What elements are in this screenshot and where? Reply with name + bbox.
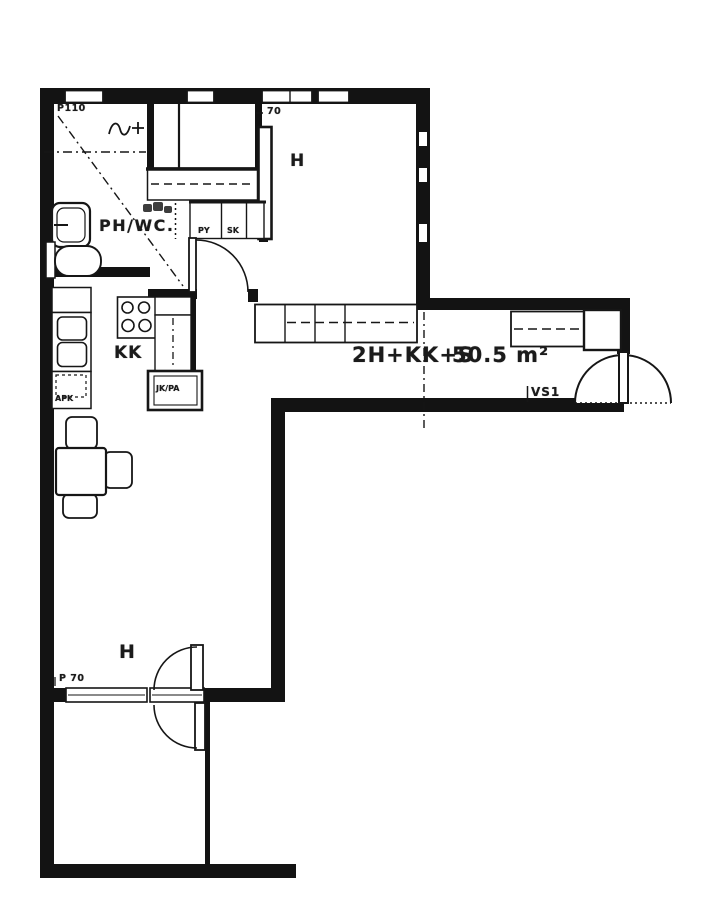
- wall-vent-notch: [419, 168, 427, 182]
- interior-door: [189, 238, 248, 292]
- bathroom-fixtures: [44, 116, 183, 286]
- counter-cabinet: [52, 288, 91, 313]
- floor-plan-linework: [0, 0, 717, 900]
- entrance-door-leaf: [619, 352, 628, 403]
- counter-cabinet: [155, 297, 191, 315]
- door-leaf: [195, 703, 205, 750]
- chair-icon: [104, 452, 132, 488]
- door-leaf: [189, 238, 196, 292]
- wall-sauna-left: [147, 103, 154, 169]
- window: [262, 91, 312, 103]
- floor-plan: P110 70 H PH/WC. PY SK KK JK/PA APK 2H+K…: [0, 0, 717, 900]
- window-dim-top: 70: [267, 106, 281, 117]
- dining-set: [56, 417, 132, 518]
- closet-label-sk: SK: [227, 226, 239, 235]
- dishwasher-label: APK: [55, 394, 73, 403]
- wall-living-bottom-left: [40, 688, 66, 702]
- plus-symbol-icon: [132, 122, 144, 134]
- toilet-icon: [55, 246, 101, 276]
- room-label-top-h: H: [290, 151, 305, 171]
- room-label-bathroom: PH/WC.: [99, 216, 174, 235]
- wall-interior-vertical: [271, 398, 285, 702]
- wall-hall-top: [416, 298, 630, 310]
- wall-vent-notch: [419, 224, 427, 242]
- window: [65, 91, 103, 103]
- door-swing-arc: [196, 240, 248, 292]
- closet-label-py: PY: [198, 226, 210, 235]
- wall-left-exterior: [40, 88, 54, 878]
- wall-kitchen-right: [191, 293, 196, 373]
- wall-hall-lower-right: [248, 289, 258, 302]
- door-leaf: [191, 645, 203, 690]
- apartment-area-label: 50.5 m²: [452, 343, 549, 367]
- dining-table-icon: [56, 448, 106, 495]
- mark-p110: P110: [57, 103, 86, 114]
- room-label-bottom-h: H: [119, 641, 136, 663]
- corner-cabinet: [584, 310, 621, 350]
- wall-living-bottom-right: [204, 688, 285, 702]
- wall-vent-notch: [419, 132, 427, 146]
- window: [187, 91, 214, 103]
- door-swing-arc: [154, 705, 197, 748]
- wall-right-top-room: [416, 88, 430, 310]
- wardrobe-row: [255, 305, 417, 343]
- window: [318, 91, 349, 103]
- chair-icon: [63, 494, 97, 518]
- room-label-kitchenette: KK: [114, 343, 142, 363]
- wardrobe-row-living: [255, 305, 417, 343]
- text-smudge: [143, 202, 172, 213]
- wall-balcony-bottom: [40, 864, 296, 878]
- fridge-label: JK/PA: [156, 384, 179, 393]
- toilet-tank: [46, 242, 55, 278]
- wave-symbol-icon: [109, 124, 130, 135]
- wall-hall-bottom: [283, 398, 624, 412]
- window-dim-bottom: P 70: [59, 673, 85, 684]
- partition-label-vs1: VS1: [531, 385, 560, 399]
- chair-icon: [66, 417, 97, 449]
